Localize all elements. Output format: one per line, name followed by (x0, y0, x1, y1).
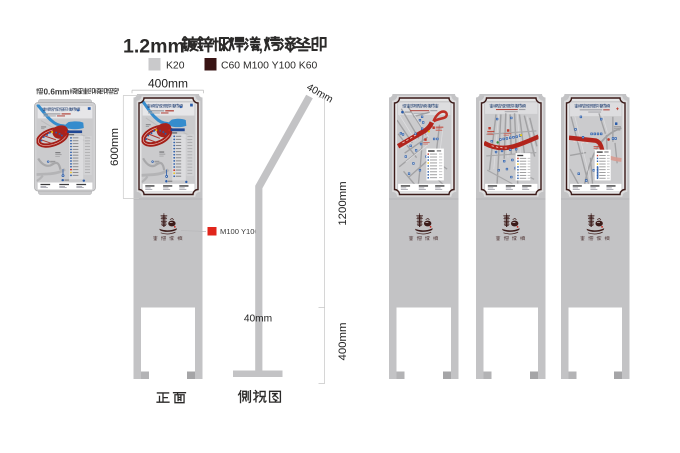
svg-text:0.6mm: 0.6mm (44, 87, 70, 96)
svg-text:40mm: 40mm (244, 314, 272, 325)
svg-text:K20: K20 (166, 61, 185, 72)
svg-text:,: , (259, 38, 263, 55)
svg-text:M100 Y100: M100 Y100 (220, 227, 259, 236)
svg-text:1.2mm: 1.2mm (123, 36, 185, 58)
svg-text:400mm: 400mm (337, 323, 349, 361)
svg-text:1200mm: 1200mm (337, 181, 349, 225)
svg-text:400mm: 400mm (148, 77, 188, 91)
svg-text:C60 M100 Y100 K60: C60 M100 Y100 K60 (221, 61, 318, 72)
svg-text:600mm: 600mm (109, 128, 121, 166)
